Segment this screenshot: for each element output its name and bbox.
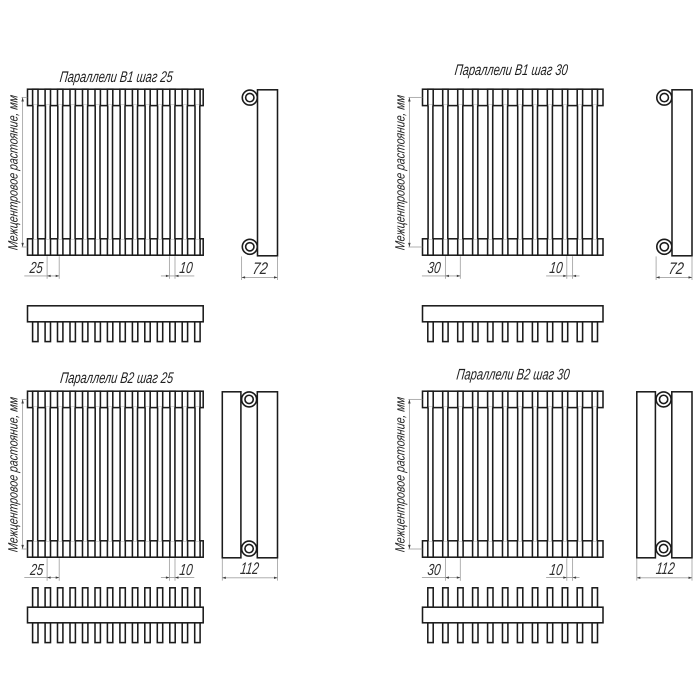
svg-text:10: 10 <box>549 259 564 277</box>
svg-text:Параллели В1 шаг 25: Параллели В1 шаг 25 <box>59 69 174 86</box>
svg-text:10: 10 <box>179 259 194 277</box>
svg-text:30: 30 <box>427 259 442 277</box>
svg-text:72: 72 <box>668 259 686 278</box>
svg-text:Параллели В1 шаг 30: Параллели В1 шаг 30 <box>454 62 569 79</box>
svg-text:72: 72 <box>252 259 270 278</box>
svg-text:30: 30 <box>427 561 442 579</box>
svg-text:25: 25 <box>29 561 45 579</box>
svg-text:Параллели В2 шаг 30: Параллели В2 шаг 30 <box>456 367 571 384</box>
svg-text:Межцентровое растояние, мм: Межцентровое растояние, мм <box>393 93 408 250</box>
svg-text:10: 10 <box>549 561 564 579</box>
svg-text:112: 112 <box>239 559 260 578</box>
svg-text:Межцентровое растояние, мм: Межцентровое растояние, мм <box>393 395 408 552</box>
svg-text:10: 10 <box>179 561 194 579</box>
svg-text:112: 112 <box>655 559 676 578</box>
svg-text:25: 25 <box>28 259 44 277</box>
svg-text:Межцентровое растояние, мм: Межцентровое растояние, мм <box>6 93 21 250</box>
svg-text:Межцентровое растояние, мм: Межцентровое растояние, мм <box>6 395 21 552</box>
svg-text:Параллели В2 шаг 25: Параллели В2 шаг 25 <box>59 370 174 387</box>
